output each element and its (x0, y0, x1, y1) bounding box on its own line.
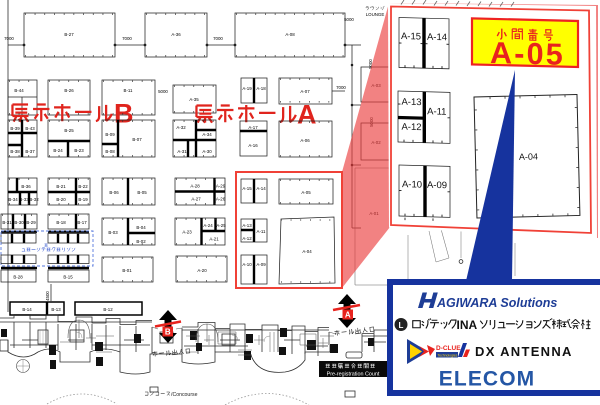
svg-text:B-07: B-07 (132, 137, 142, 142)
svg-text:L: L (399, 321, 404, 330)
svg-text:A-30: A-30 (202, 149, 212, 154)
svg-text:B-24: B-24 (53, 148, 63, 153)
svg-text:B: B (165, 328, 171, 337)
svg-text:A-13: A-13 (401, 97, 421, 109)
svg-text:A-31: A-31 (177, 149, 187, 154)
svg-text:A-10: A-10 (242, 262, 252, 267)
svg-text:7000: 7000 (4, 36, 14, 41)
svg-text:/Concourse: /Concourse (171, 392, 198, 398)
svg-text:A-04: A-04 (519, 151, 538, 161)
svg-text:B-21: B-21 (56, 184, 66, 189)
svg-text:A-15: A-15 (242, 186, 252, 191)
svg-text:A-25: A-25 (216, 223, 226, 228)
svg-text:A-28: A-28 (190, 184, 200, 189)
svg-text:A-35: A-35 (189, 97, 199, 102)
svg-text:A-09: A-09 (427, 180, 447, 192)
svg-text:A-06: A-06 (300, 138, 310, 143)
svg-text:A-07: A-07 (300, 89, 310, 94)
svg-text:7000: 7000 (336, 85, 346, 90)
svg-text:B-04: B-04 (136, 225, 146, 230)
svg-text:B-11: B-11 (124, 88, 134, 93)
svg-text:B-31: B-31 (2, 220, 12, 225)
svg-text:B-30: B-30 (14, 220, 24, 225)
svg-text:A-17: A-17 (248, 125, 258, 130)
svg-text:A-29: A-29 (216, 184, 226, 189)
svg-text:INA: INA (457, 318, 478, 332)
svg-text:B-32: B-32 (29, 197, 39, 202)
svg-text:B-18: B-18 (56, 220, 66, 225)
svg-text:B-13: B-13 (51, 307, 61, 312)
svg-text:A-16: A-16 (248, 143, 258, 148)
svg-text:A-05: A-05 (301, 190, 311, 195)
svg-text:A-19: A-19 (242, 86, 252, 91)
svg-text:A-34: A-34 (202, 132, 212, 137)
svg-text:B-17: B-17 (77, 220, 87, 225)
svg-text:B-05: B-05 (137, 190, 147, 195)
svg-text:A-26: A-26 (216, 197, 226, 202)
svg-text:B-28: B-28 (13, 275, 23, 280)
svg-text:A: A (345, 311, 351, 320)
svg-text:A-14: A-14 (256, 186, 266, 191)
svg-text:B-02: B-02 (136, 239, 146, 244)
svg-text:B-43: B-43 (25, 126, 35, 131)
svg-text:A-20: A-20 (197, 268, 207, 273)
svg-text:AGIWARA Solutions: AGIWARA Solutions (436, 296, 557, 310)
svg-text:B-03: B-03 (108, 230, 118, 235)
svg-text:B-23: B-23 (74, 148, 84, 153)
svg-text:4500: 4500 (45, 291, 50, 301)
svg-text:A-23: A-23 (182, 230, 192, 235)
svg-text:B-19: B-19 (78, 197, 88, 202)
svg-text:B-09: B-09 (105, 132, 115, 137)
svg-text:A-10: A-10 (402, 179, 422, 191)
svg-text:A-18: A-18 (256, 86, 266, 91)
svg-text:ELECOM: ELECOM (439, 368, 535, 391)
svg-text:A-12: A-12 (242, 236, 252, 241)
svg-text:D-CLUE: D-CLUE (436, 345, 461, 352)
svg-text:B-08: B-08 (105, 149, 115, 154)
svg-text:A-08: A-08 (285, 32, 295, 37)
svg-text:A-12: A-12 (401, 122, 421, 134)
svg-text:B-14: B-14 (22, 307, 32, 312)
svg-text:A-21: A-21 (209, 237, 219, 242)
svg-text:B-12: B-12 (103, 307, 113, 312)
svg-text:B-34: B-34 (8, 197, 18, 202)
svg-text:B-27: B-27 (64, 32, 74, 37)
svg-text:B-39: B-39 (10, 126, 20, 131)
svg-text:A-36: A-36 (171, 32, 181, 37)
svg-text:A-09: A-09 (256, 262, 266, 267)
svg-text:A-32: A-32 (176, 125, 186, 130)
svg-text:B-38: B-38 (10, 149, 20, 154)
svg-text:A-14: A-14 (427, 32, 447, 44)
svg-text:A-04: A-04 (302, 249, 312, 254)
svg-text:A-13: A-13 (242, 223, 252, 228)
svg-text:B-37: B-37 (25, 149, 35, 154)
svg-text:B-44: B-44 (14, 88, 24, 93)
svg-text:B-01: B-01 (122, 268, 132, 273)
svg-text:A: A (297, 100, 317, 130)
svg-text:A-11: A-11 (427, 106, 446, 118)
svg-text:B-06: B-06 (109, 190, 119, 195)
svg-text:Pre-registration Count: Pre-registration Count (327, 372, 380, 378)
svg-text:B-33: B-33 (19, 197, 29, 202)
svg-text:B-25: B-25 (64, 128, 74, 133)
svg-text:B-22: B-22 (78, 184, 88, 189)
svg-text:B-26: B-26 (64, 88, 74, 93)
svg-text:B-15: B-15 (63, 275, 73, 280)
svg-text:Technologies: Technologies (438, 354, 458, 358)
svg-text:A-05: A-05 (490, 36, 565, 72)
svg-text:A-27: A-27 (191, 197, 201, 202)
svg-text:DX ANTENNA: DX ANTENNA (475, 344, 573, 359)
svg-text:5000: 5000 (158, 89, 168, 94)
svg-text:5000: 5000 (344, 17, 354, 22)
svg-text:B-20: B-20 (56, 197, 66, 202)
svg-text:B-36: B-36 (21, 184, 31, 189)
svg-text:LOUNGE: LOUNGE (366, 12, 385, 17)
svg-text:7000: 7000 (122, 36, 132, 41)
svg-text:A-24: A-24 (203, 223, 213, 228)
svg-text:A-11: A-11 (257, 229, 267, 234)
svg-text:A-15: A-15 (401, 31, 421, 43)
svg-text:7000: 7000 (213, 36, 223, 41)
svg-text:B-29: B-29 (26, 220, 36, 225)
